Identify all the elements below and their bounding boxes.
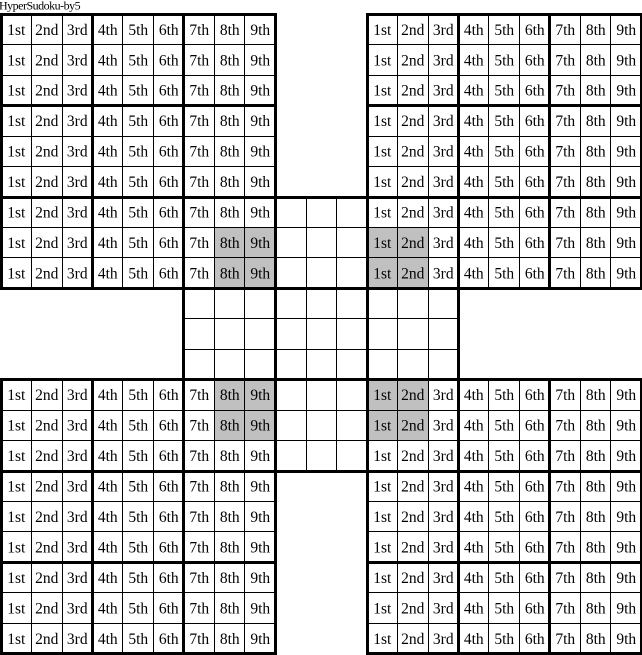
svg-text:7th: 7th xyxy=(555,205,575,222)
svg-text:3rd: 3rd xyxy=(433,448,454,465)
svg-text:2nd: 2nd xyxy=(35,205,59,222)
svg-text:6th: 6th xyxy=(525,631,545,648)
svg-text:9th: 9th xyxy=(250,600,270,617)
svg-text:8th: 8th xyxy=(220,570,240,587)
svg-text:9th: 9th xyxy=(250,539,270,556)
svg-text:2nd: 2nd xyxy=(35,83,59,100)
svg-text:5th: 5th xyxy=(494,205,514,222)
svg-text:3rd: 3rd xyxy=(433,479,454,496)
svg-text:7th: 7th xyxy=(189,265,209,282)
svg-text:8th: 8th xyxy=(220,83,240,100)
svg-text:7th: 7th xyxy=(189,600,209,617)
svg-text:2nd: 2nd xyxy=(401,631,425,648)
svg-text:4th: 4th xyxy=(98,387,118,404)
svg-text:2nd: 2nd xyxy=(401,174,425,191)
svg-text:1st: 1st xyxy=(7,174,26,191)
svg-text:7th: 7th xyxy=(555,22,575,39)
svg-text:4th: 4th xyxy=(98,144,118,161)
svg-text:9th: 9th xyxy=(250,265,270,282)
svg-text:4th: 4th xyxy=(464,205,484,222)
svg-text:1st: 1st xyxy=(373,113,392,130)
svg-text:1st: 1st xyxy=(7,600,26,617)
svg-text:1st: 1st xyxy=(7,570,26,587)
svg-text:1st: 1st xyxy=(373,22,392,39)
svg-text:8th: 8th xyxy=(586,83,606,100)
svg-text:1st: 1st xyxy=(7,539,26,556)
svg-text:6th: 6th xyxy=(525,387,545,404)
svg-text:5th: 5th xyxy=(128,479,148,496)
svg-text:2nd: 2nd xyxy=(35,448,59,465)
svg-text:1st: 1st xyxy=(373,539,392,556)
svg-text:1st: 1st xyxy=(7,509,26,526)
svg-text:7th: 7th xyxy=(189,631,209,648)
svg-text:4th: 4th xyxy=(464,22,484,39)
svg-text:2nd: 2nd xyxy=(35,570,59,587)
svg-text:3rd: 3rd xyxy=(433,539,454,556)
svg-text:3rd: 3rd xyxy=(433,418,454,435)
svg-text:1st: 1st xyxy=(7,479,26,496)
svg-text:1st: 1st xyxy=(373,387,392,404)
svg-text:7th: 7th xyxy=(555,113,575,130)
svg-text:9th: 9th xyxy=(250,387,270,404)
svg-text:2nd: 2nd xyxy=(35,539,59,556)
svg-text:9th: 9th xyxy=(616,52,636,69)
svg-text:4th: 4th xyxy=(464,509,484,526)
svg-text:7th: 7th xyxy=(555,479,575,496)
svg-text:4th: 4th xyxy=(464,387,484,404)
svg-text:4th: 4th xyxy=(98,448,118,465)
svg-text:8th: 8th xyxy=(586,448,606,465)
svg-text:8th: 8th xyxy=(586,235,606,252)
svg-text:8th: 8th xyxy=(220,387,240,404)
svg-text:5th: 5th xyxy=(494,509,514,526)
svg-text:1st: 1st xyxy=(373,265,392,282)
svg-text:5th: 5th xyxy=(128,265,148,282)
svg-text:2nd: 2nd xyxy=(35,52,59,69)
svg-text:7th: 7th xyxy=(555,265,575,282)
svg-text:1st: 1st xyxy=(7,52,26,69)
svg-text:3rd: 3rd xyxy=(433,265,454,282)
svg-text:5th: 5th xyxy=(494,174,514,191)
svg-text:7th: 7th xyxy=(555,235,575,252)
svg-text:2nd: 2nd xyxy=(35,509,59,526)
svg-text:6th: 6th xyxy=(525,113,545,130)
svg-text:6th: 6th xyxy=(159,539,179,556)
svg-text:9th: 9th xyxy=(616,144,636,161)
svg-text:2nd: 2nd xyxy=(401,570,425,587)
svg-text:9th: 9th xyxy=(250,113,270,130)
svg-text:6th: 6th xyxy=(525,509,545,526)
svg-text:4th: 4th xyxy=(98,174,118,191)
svg-text:2nd: 2nd xyxy=(401,235,425,252)
svg-text:3rd: 3rd xyxy=(67,52,88,69)
svg-text:6th: 6th xyxy=(525,22,545,39)
svg-text:3rd: 3rd xyxy=(433,235,454,252)
svg-text:8th: 8th xyxy=(220,631,240,648)
svg-text:2nd: 2nd xyxy=(401,600,425,617)
svg-text:7th: 7th xyxy=(555,418,575,435)
svg-text:9th: 9th xyxy=(250,418,270,435)
svg-text:3rd: 3rd xyxy=(433,22,454,39)
svg-text:9th: 9th xyxy=(616,205,636,222)
svg-text:6th: 6th xyxy=(159,265,179,282)
svg-text:1st: 1st xyxy=(373,205,392,222)
svg-text:9th: 9th xyxy=(250,631,270,648)
svg-text:4th: 4th xyxy=(98,52,118,69)
svg-text:5th: 5th xyxy=(494,83,514,100)
svg-text:8th: 8th xyxy=(220,448,240,465)
svg-text:6th: 6th xyxy=(159,174,179,191)
svg-text:7th: 7th xyxy=(189,144,209,161)
svg-text:8th: 8th xyxy=(586,144,606,161)
svg-text:5th: 5th xyxy=(494,235,514,252)
svg-text:6th: 6th xyxy=(159,631,179,648)
svg-text:1st: 1st xyxy=(7,205,26,222)
svg-text:5th: 5th xyxy=(128,144,148,161)
svg-text:5th: 5th xyxy=(494,22,514,39)
svg-text:1st: 1st xyxy=(7,418,26,435)
svg-text:9th: 9th xyxy=(250,52,270,69)
svg-text:3rd: 3rd xyxy=(67,22,88,39)
svg-text:3rd: 3rd xyxy=(67,205,88,222)
svg-text:6th: 6th xyxy=(525,600,545,617)
svg-text:5th: 5th xyxy=(128,205,148,222)
svg-text:7th: 7th xyxy=(555,83,575,100)
svg-text:6th: 6th xyxy=(159,509,179,526)
svg-text:3rd: 3rd xyxy=(67,539,88,556)
svg-text:9th: 9th xyxy=(250,570,270,587)
svg-text:2nd: 2nd xyxy=(35,631,59,648)
svg-text:4th: 4th xyxy=(464,113,484,130)
svg-text:7th: 7th xyxy=(555,570,575,587)
svg-text:3rd: 3rd xyxy=(433,631,454,648)
svg-text:7th: 7th xyxy=(555,52,575,69)
svg-text:8th: 8th xyxy=(586,570,606,587)
svg-text:7th: 7th xyxy=(189,479,209,496)
svg-text:6th: 6th xyxy=(159,205,179,222)
svg-text:1st: 1st xyxy=(373,52,392,69)
svg-text:6th: 6th xyxy=(525,83,545,100)
svg-text:6th: 6th xyxy=(525,448,545,465)
svg-text:8th: 8th xyxy=(586,479,606,496)
svg-text:3rd: 3rd xyxy=(67,144,88,161)
svg-text:1st: 1st xyxy=(7,113,26,130)
svg-text:5th: 5th xyxy=(128,387,148,404)
svg-text:7th: 7th xyxy=(189,174,209,191)
svg-text:1st: 1st xyxy=(373,570,392,587)
svg-text:7th: 7th xyxy=(555,174,575,191)
svg-text:3rd: 3rd xyxy=(67,265,88,282)
svg-text:2nd: 2nd xyxy=(35,265,59,282)
svg-text:8th: 8th xyxy=(586,113,606,130)
svg-text:9th: 9th xyxy=(250,235,270,252)
svg-text:8th: 8th xyxy=(220,539,240,556)
svg-text:6th: 6th xyxy=(159,113,179,130)
svg-text:3rd: 3rd xyxy=(433,205,454,222)
svg-text:3rd: 3rd xyxy=(433,387,454,404)
svg-text:1st: 1st xyxy=(373,83,392,100)
svg-text:4th: 4th xyxy=(464,52,484,69)
svg-text:6th: 6th xyxy=(525,539,545,556)
svg-text:2nd: 2nd xyxy=(401,479,425,496)
svg-text:7th: 7th xyxy=(189,570,209,587)
svg-text:6th: 6th xyxy=(159,600,179,617)
svg-text:2nd: 2nd xyxy=(401,539,425,556)
svg-text:8th: 8th xyxy=(586,631,606,648)
svg-text:4th: 4th xyxy=(98,418,118,435)
svg-text:2nd: 2nd xyxy=(35,113,59,130)
svg-text:7th: 7th xyxy=(189,52,209,69)
svg-text:8th: 8th xyxy=(220,235,240,252)
svg-text:9th: 9th xyxy=(616,83,636,100)
svg-text:2nd: 2nd xyxy=(401,509,425,526)
svg-text:8th: 8th xyxy=(586,205,606,222)
svg-text:2nd: 2nd xyxy=(35,144,59,161)
svg-text:3rd: 3rd xyxy=(67,448,88,465)
svg-text:4th: 4th xyxy=(98,539,118,556)
svg-text:9th: 9th xyxy=(616,113,636,130)
svg-text:8th: 8th xyxy=(586,418,606,435)
svg-text:5th: 5th xyxy=(128,52,148,69)
svg-text:4th: 4th xyxy=(464,539,484,556)
svg-text:1st: 1st xyxy=(7,631,26,648)
svg-text:4th: 4th xyxy=(98,509,118,526)
svg-text:8th: 8th xyxy=(220,509,240,526)
svg-text:9th: 9th xyxy=(616,418,636,435)
svg-text:8th: 8th xyxy=(586,509,606,526)
svg-text:4th: 4th xyxy=(464,631,484,648)
svg-text:9th: 9th xyxy=(250,205,270,222)
svg-text:8th: 8th xyxy=(586,539,606,556)
svg-text:5th: 5th xyxy=(128,113,148,130)
svg-text:3rd: 3rd xyxy=(67,113,88,130)
svg-text:8th: 8th xyxy=(220,205,240,222)
svg-text:6th: 6th xyxy=(525,570,545,587)
svg-text:5th: 5th xyxy=(128,631,148,648)
svg-text:4th: 4th xyxy=(98,631,118,648)
svg-text:2nd: 2nd xyxy=(401,52,425,69)
svg-text:4th: 4th xyxy=(464,235,484,252)
svg-text:2nd: 2nd xyxy=(35,174,59,191)
svg-text:7th: 7th xyxy=(555,600,575,617)
svg-text:8th: 8th xyxy=(220,265,240,282)
svg-text:3rd: 3rd xyxy=(433,113,454,130)
svg-text:2nd: 2nd xyxy=(401,265,425,282)
svg-text:5th: 5th xyxy=(494,448,514,465)
svg-text:4th: 4th xyxy=(464,570,484,587)
svg-text:4th: 4th xyxy=(98,570,118,587)
svg-text:3rd: 3rd xyxy=(433,600,454,617)
svg-text:2nd: 2nd xyxy=(401,83,425,100)
svg-text:1st: 1st xyxy=(7,83,26,100)
svg-text:7th: 7th xyxy=(555,387,575,404)
svg-text:5th: 5th xyxy=(128,174,148,191)
svg-text:7th: 7th xyxy=(189,83,209,100)
svg-text:3rd: 3rd xyxy=(433,83,454,100)
svg-text:7th: 7th xyxy=(555,509,575,526)
svg-text:5th: 5th xyxy=(494,600,514,617)
svg-text:5th: 5th xyxy=(128,600,148,617)
svg-text:3rd: 3rd xyxy=(67,570,88,587)
svg-text:9th: 9th xyxy=(616,479,636,496)
svg-text:3rd: 3rd xyxy=(67,83,88,100)
svg-text:9th: 9th xyxy=(616,539,636,556)
svg-text:2nd: 2nd xyxy=(401,22,425,39)
svg-text:8th: 8th xyxy=(220,144,240,161)
svg-text:3rd: 3rd xyxy=(433,509,454,526)
svg-text:9th: 9th xyxy=(616,631,636,648)
svg-text:1st: 1st xyxy=(373,235,392,252)
svg-text:7th: 7th xyxy=(555,144,575,161)
svg-text:5th: 5th xyxy=(128,418,148,435)
svg-text:6th: 6th xyxy=(525,144,545,161)
svg-text:8th: 8th xyxy=(586,22,606,39)
svg-text:5th: 5th xyxy=(128,570,148,587)
svg-text:7th: 7th xyxy=(189,387,209,404)
svg-text:4th: 4th xyxy=(464,479,484,496)
svg-text:9th: 9th xyxy=(250,22,270,39)
svg-text:3rd: 3rd xyxy=(67,235,88,252)
svg-text:7th: 7th xyxy=(189,509,209,526)
svg-text:8th: 8th xyxy=(220,600,240,617)
svg-text:2nd: 2nd xyxy=(401,448,425,465)
svg-text:5th: 5th xyxy=(494,387,514,404)
svg-text:2nd: 2nd xyxy=(35,418,59,435)
svg-text:7th: 7th xyxy=(189,113,209,130)
svg-text:5th: 5th xyxy=(128,83,148,100)
svg-text:6th: 6th xyxy=(525,418,545,435)
svg-text:4th: 4th xyxy=(98,113,118,130)
svg-text:9th: 9th xyxy=(250,509,270,526)
svg-text:2nd: 2nd xyxy=(401,144,425,161)
svg-text:9th: 9th xyxy=(250,448,270,465)
svg-text:3rd: 3rd xyxy=(433,52,454,69)
svg-text:4th: 4th xyxy=(464,600,484,617)
svg-text:7th: 7th xyxy=(189,235,209,252)
svg-text:6th: 6th xyxy=(159,387,179,404)
svg-text:7th: 7th xyxy=(189,205,209,222)
svg-text:4th: 4th xyxy=(464,265,484,282)
svg-text:8th: 8th xyxy=(220,113,240,130)
svg-text:9th: 9th xyxy=(250,83,270,100)
svg-text:1st: 1st xyxy=(373,418,392,435)
svg-text:7th: 7th xyxy=(189,22,209,39)
svg-text:5th: 5th xyxy=(494,265,514,282)
svg-text:6th: 6th xyxy=(159,52,179,69)
svg-text:7th: 7th xyxy=(189,448,209,465)
svg-text:8th: 8th xyxy=(586,387,606,404)
svg-text:7th: 7th xyxy=(189,539,209,556)
svg-text:4th: 4th xyxy=(464,418,484,435)
svg-text:6th: 6th xyxy=(525,205,545,222)
svg-text:9th: 9th xyxy=(616,600,636,617)
svg-text:5th: 5th xyxy=(128,22,148,39)
svg-text:6th: 6th xyxy=(159,22,179,39)
svg-text:1st: 1st xyxy=(7,265,26,282)
svg-text:1st: 1st xyxy=(7,144,26,161)
svg-text:9th: 9th xyxy=(250,144,270,161)
svg-text:2nd: 2nd xyxy=(35,600,59,617)
svg-text:4th: 4th xyxy=(98,22,118,39)
svg-text:8th: 8th xyxy=(220,22,240,39)
svg-text:1st: 1st xyxy=(373,479,392,496)
svg-text:8th: 8th xyxy=(220,52,240,69)
svg-text:3rd: 3rd xyxy=(67,479,88,496)
svg-text:9th: 9th xyxy=(616,235,636,252)
svg-text:4th: 4th xyxy=(464,83,484,100)
svg-text:8th: 8th xyxy=(586,600,606,617)
svg-text:3rd: 3rd xyxy=(67,509,88,526)
svg-text:6th: 6th xyxy=(525,265,545,282)
svg-text:8th: 8th xyxy=(586,52,606,69)
svg-text:6th: 6th xyxy=(525,479,545,496)
svg-text:1st: 1st xyxy=(373,509,392,526)
svg-text:4th: 4th xyxy=(98,83,118,100)
svg-text:9th: 9th xyxy=(616,22,636,39)
svg-text:6th: 6th xyxy=(525,52,545,69)
svg-text:6th: 6th xyxy=(159,570,179,587)
svg-text:6th: 6th xyxy=(159,448,179,465)
svg-text:4th: 4th xyxy=(98,600,118,617)
svg-text:5th: 5th xyxy=(128,235,148,252)
svg-text:2nd: 2nd xyxy=(35,22,59,39)
svg-text:2nd: 2nd xyxy=(401,418,425,435)
svg-text:HyperSudoku-by5: HyperSudoku-by5 xyxy=(0,0,81,13)
svg-text:9th: 9th xyxy=(616,570,636,587)
svg-text:4th: 4th xyxy=(98,235,118,252)
svg-text:5th: 5th xyxy=(494,144,514,161)
svg-text:9th: 9th xyxy=(616,387,636,404)
svg-text:4th: 4th xyxy=(98,205,118,222)
svg-text:3rd: 3rd xyxy=(67,387,88,404)
svg-text:7th: 7th xyxy=(555,539,575,556)
svg-text:1st: 1st xyxy=(373,448,392,465)
svg-text:6th: 6th xyxy=(525,174,545,191)
svg-text:7th: 7th xyxy=(555,448,575,465)
svg-text:6th: 6th xyxy=(159,83,179,100)
svg-text:2nd: 2nd xyxy=(401,205,425,222)
svg-text:6th: 6th xyxy=(159,479,179,496)
svg-text:3rd: 3rd xyxy=(433,144,454,161)
svg-text:1st: 1st xyxy=(7,235,26,252)
svg-text:8th: 8th xyxy=(586,174,606,191)
svg-text:4th: 4th xyxy=(464,144,484,161)
svg-text:9th: 9th xyxy=(616,509,636,526)
svg-text:3rd: 3rd xyxy=(433,570,454,587)
svg-text:7th: 7th xyxy=(555,631,575,648)
svg-text:2nd: 2nd xyxy=(35,479,59,496)
svg-text:4th: 4th xyxy=(98,265,118,282)
svg-text:5th: 5th xyxy=(494,479,514,496)
svg-text:3rd: 3rd xyxy=(433,174,454,191)
svg-text:7th: 7th xyxy=(189,418,209,435)
svg-text:6th: 6th xyxy=(525,235,545,252)
svg-text:5th: 5th xyxy=(128,509,148,526)
svg-text:3rd: 3rd xyxy=(67,631,88,648)
svg-text:6th: 6th xyxy=(159,418,179,435)
svg-text:5th: 5th xyxy=(494,539,514,556)
svg-text:5th: 5th xyxy=(494,113,514,130)
svg-text:1st: 1st xyxy=(373,174,392,191)
svg-text:5th: 5th xyxy=(494,418,514,435)
svg-text:3rd: 3rd xyxy=(67,418,88,435)
svg-text:1st: 1st xyxy=(7,22,26,39)
svg-text:1st: 1st xyxy=(7,387,26,404)
svg-text:8th: 8th xyxy=(220,479,240,496)
svg-text:8th: 8th xyxy=(220,174,240,191)
svg-text:8th: 8th xyxy=(220,418,240,435)
svg-text:2nd: 2nd xyxy=(401,113,425,130)
